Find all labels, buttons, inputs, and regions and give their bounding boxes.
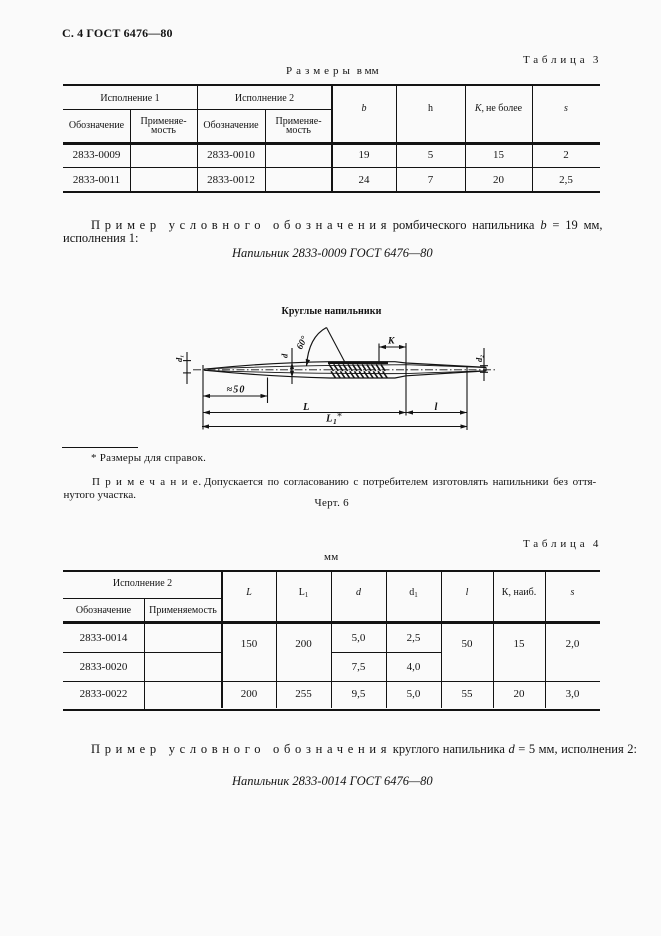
svg-text:l: l (435, 402, 438, 413)
svg-text:L: L (302, 402, 309, 413)
svg-text:L: L (325, 414, 332, 425)
svg-text:d: d (280, 353, 290, 358)
svg-text:*: * (337, 412, 342, 423)
svg-text:≈50: ≈50 (227, 385, 246, 396)
svg-text:К: К (387, 337, 395, 347)
svg-text:d₁: d₁ (174, 355, 184, 362)
svg-text:d₂: d₂ (474, 355, 484, 362)
svg-text:60°: 60° (294, 334, 310, 351)
